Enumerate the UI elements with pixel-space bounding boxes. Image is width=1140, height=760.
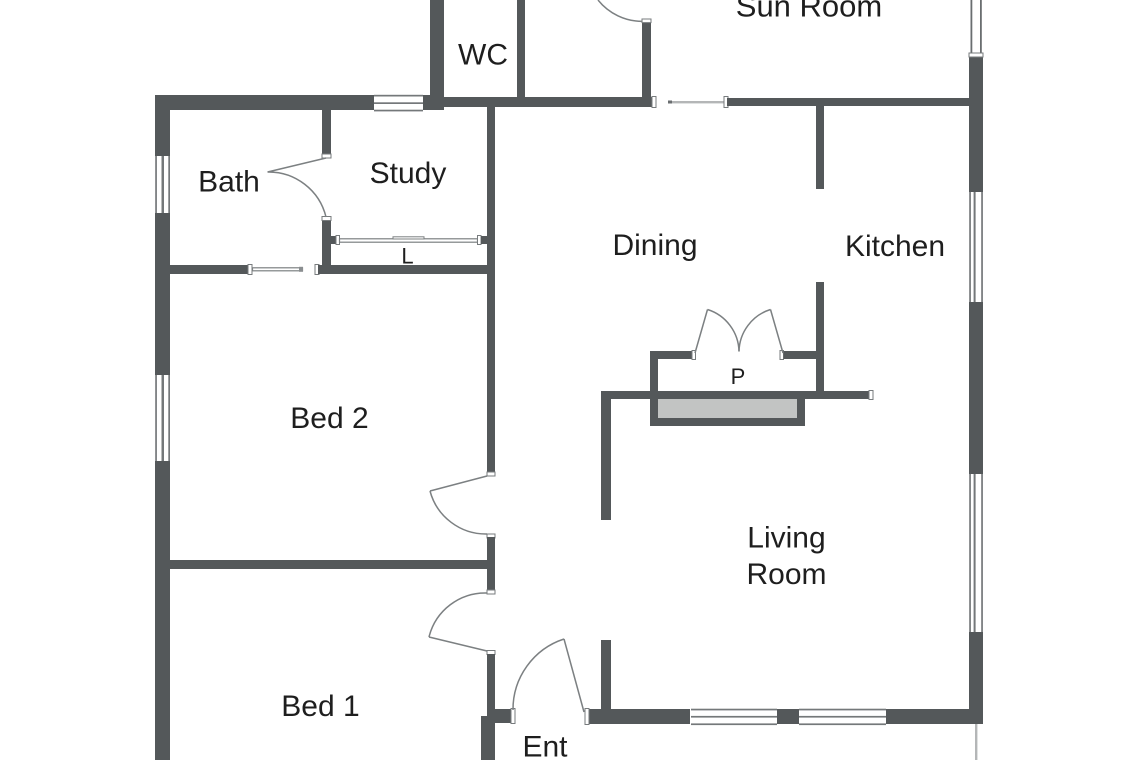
svg-text:Living: Living: [747, 521, 825, 554]
svg-text:Ent: Ent: [522, 730, 568, 760]
svg-text:L: L: [401, 243, 413, 268]
svg-text:Kitchen: Kitchen: [845, 230, 945, 263]
svg-text:Bath: Bath: [198, 166, 260, 199]
svg-text:Study: Study: [370, 157, 447, 190]
svg-text:WC: WC: [458, 39, 508, 72]
svg-text:Bed 1: Bed 1: [281, 690, 359, 723]
svg-text:P: P: [731, 364, 746, 389]
svg-text:Sun Room: Sun Room: [736, 0, 882, 23]
svg-text:Room: Room: [746, 558, 826, 591]
svg-text:Dining: Dining: [612, 229, 697, 262]
svg-text:Bed 2: Bed 2: [290, 402, 368, 435]
